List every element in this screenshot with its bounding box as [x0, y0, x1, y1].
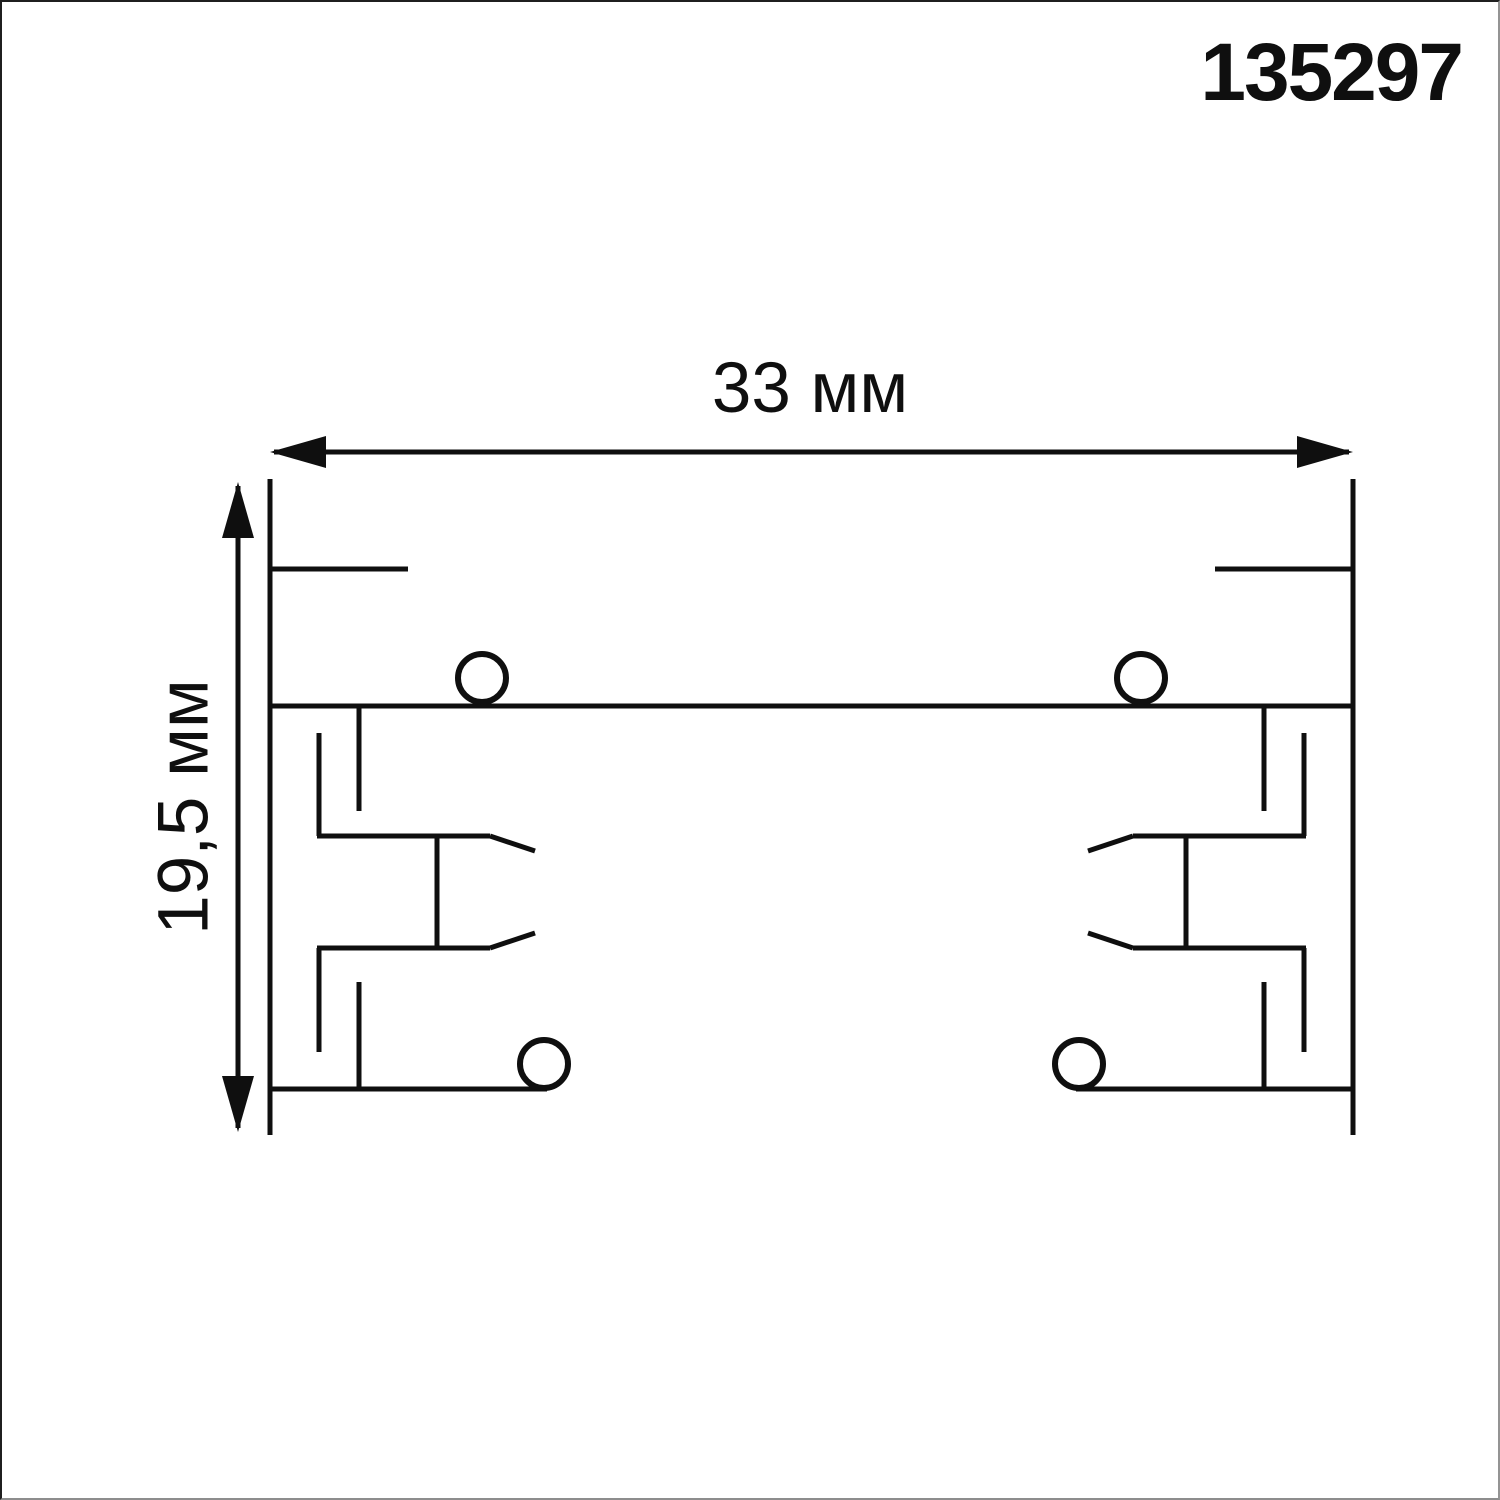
- height-dimension-label: 19,5 мм: [149, 679, 220, 935]
- diagram-page: 135297 33 мм 19,5 мм: [0, 0, 1500, 1500]
- article-number: 135297: [1200, 32, 1462, 114]
- profile-drawing: [2, 2, 1500, 1500]
- width-dimension-label: 33 мм: [712, 353, 908, 424]
